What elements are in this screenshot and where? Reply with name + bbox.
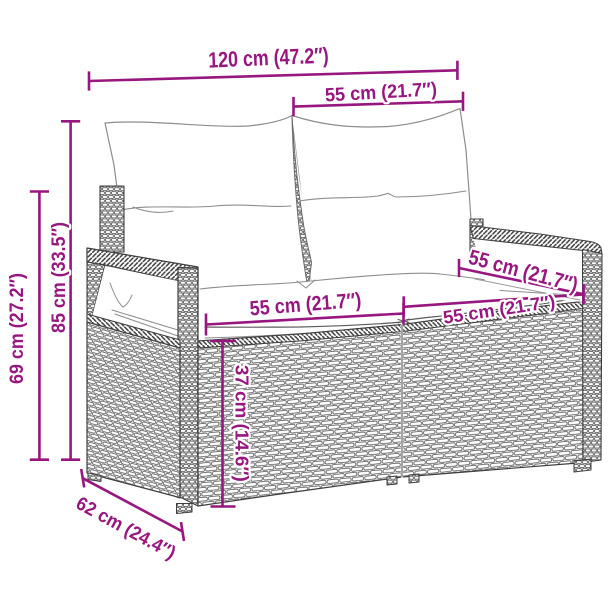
svg-text:69 cm (27.2″): 69 cm (27.2″) — [7, 273, 28, 384]
svg-text:85 cm (33.5″): 85 cm (33.5″) — [49, 222, 70, 333]
svg-text:37 cm (14.6″): 37 cm (14.6″) — [232, 365, 252, 482]
svg-text:120 cm (47.2″): 120 cm (47.2″) — [208, 43, 329, 73]
